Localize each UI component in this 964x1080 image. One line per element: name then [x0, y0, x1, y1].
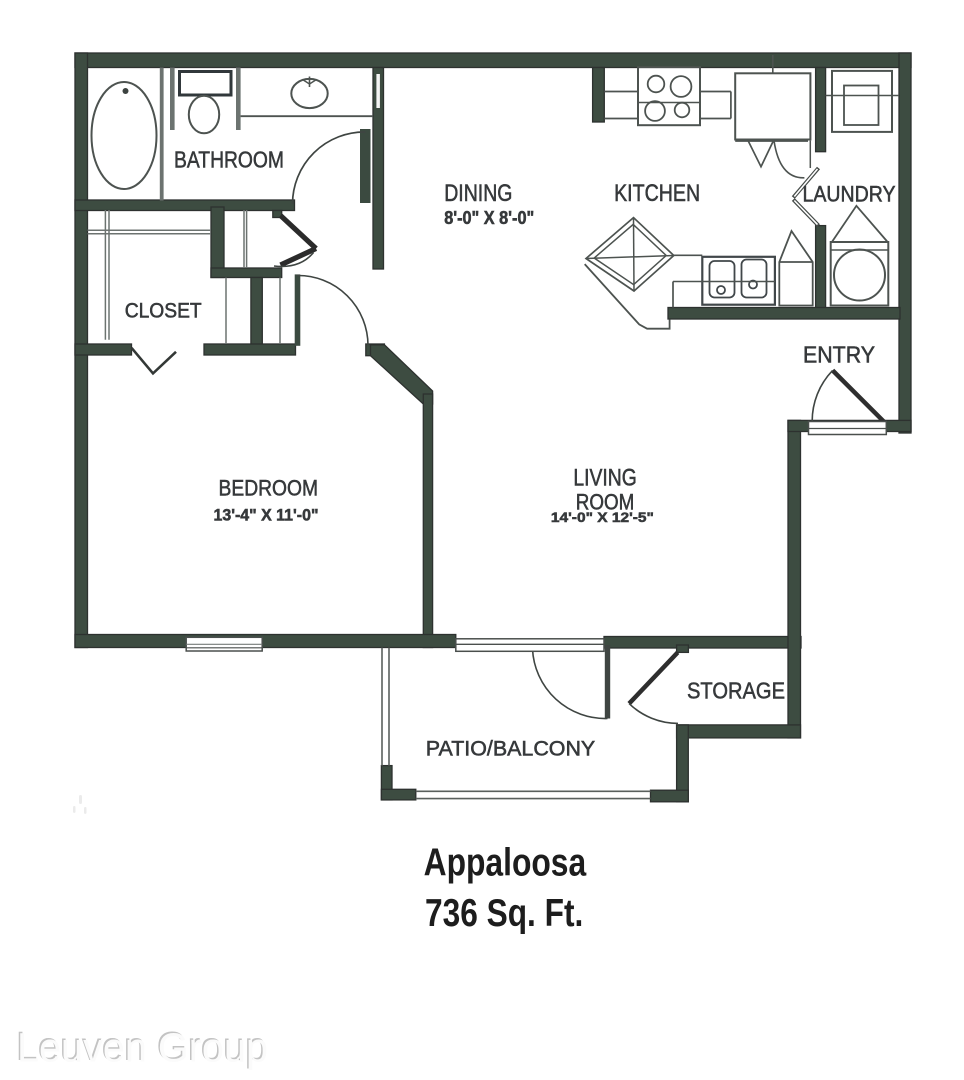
- svg-text:14'-0" X 12'-5": 14'-0" X 12'-5": [551, 509, 654, 525]
- svg-text:13'-4" X 11'-0": 13'-4" X 11'-0": [214, 506, 319, 525]
- svg-text:8'-0" X 8'-0": 8'-0" X 8'-0": [444, 208, 534, 228]
- svg-text:DINING: DINING: [444, 180, 512, 207]
- svg-text:736 Sq. Ft.: 736 Sq. Ft.: [425, 892, 583, 935]
- svg-text:PATIO/BALCONY: PATIO/BALCONY: [426, 738, 595, 761]
- svg-text:KITCHEN: KITCHEN: [614, 180, 700, 207]
- svg-text:BATHROOM: BATHROOM: [174, 146, 284, 172]
- svg-text:LAUNDRY: LAUNDRY: [803, 181, 896, 206]
- svg-text:BEDROOM: BEDROOM: [219, 476, 319, 501]
- svg-text:Appaloosa: Appaloosa: [424, 842, 587, 885]
- svg-text:LIVING: LIVING: [573, 465, 636, 492]
- svg-text:STORAGE: STORAGE: [687, 677, 785, 703]
- svg-text:CLOSET: CLOSET: [125, 300, 202, 323]
- svg-text:Leuven Group: Leuven Group: [17, 1025, 268, 1071]
- svg-text:ENTRY: ENTRY: [803, 342, 875, 368]
